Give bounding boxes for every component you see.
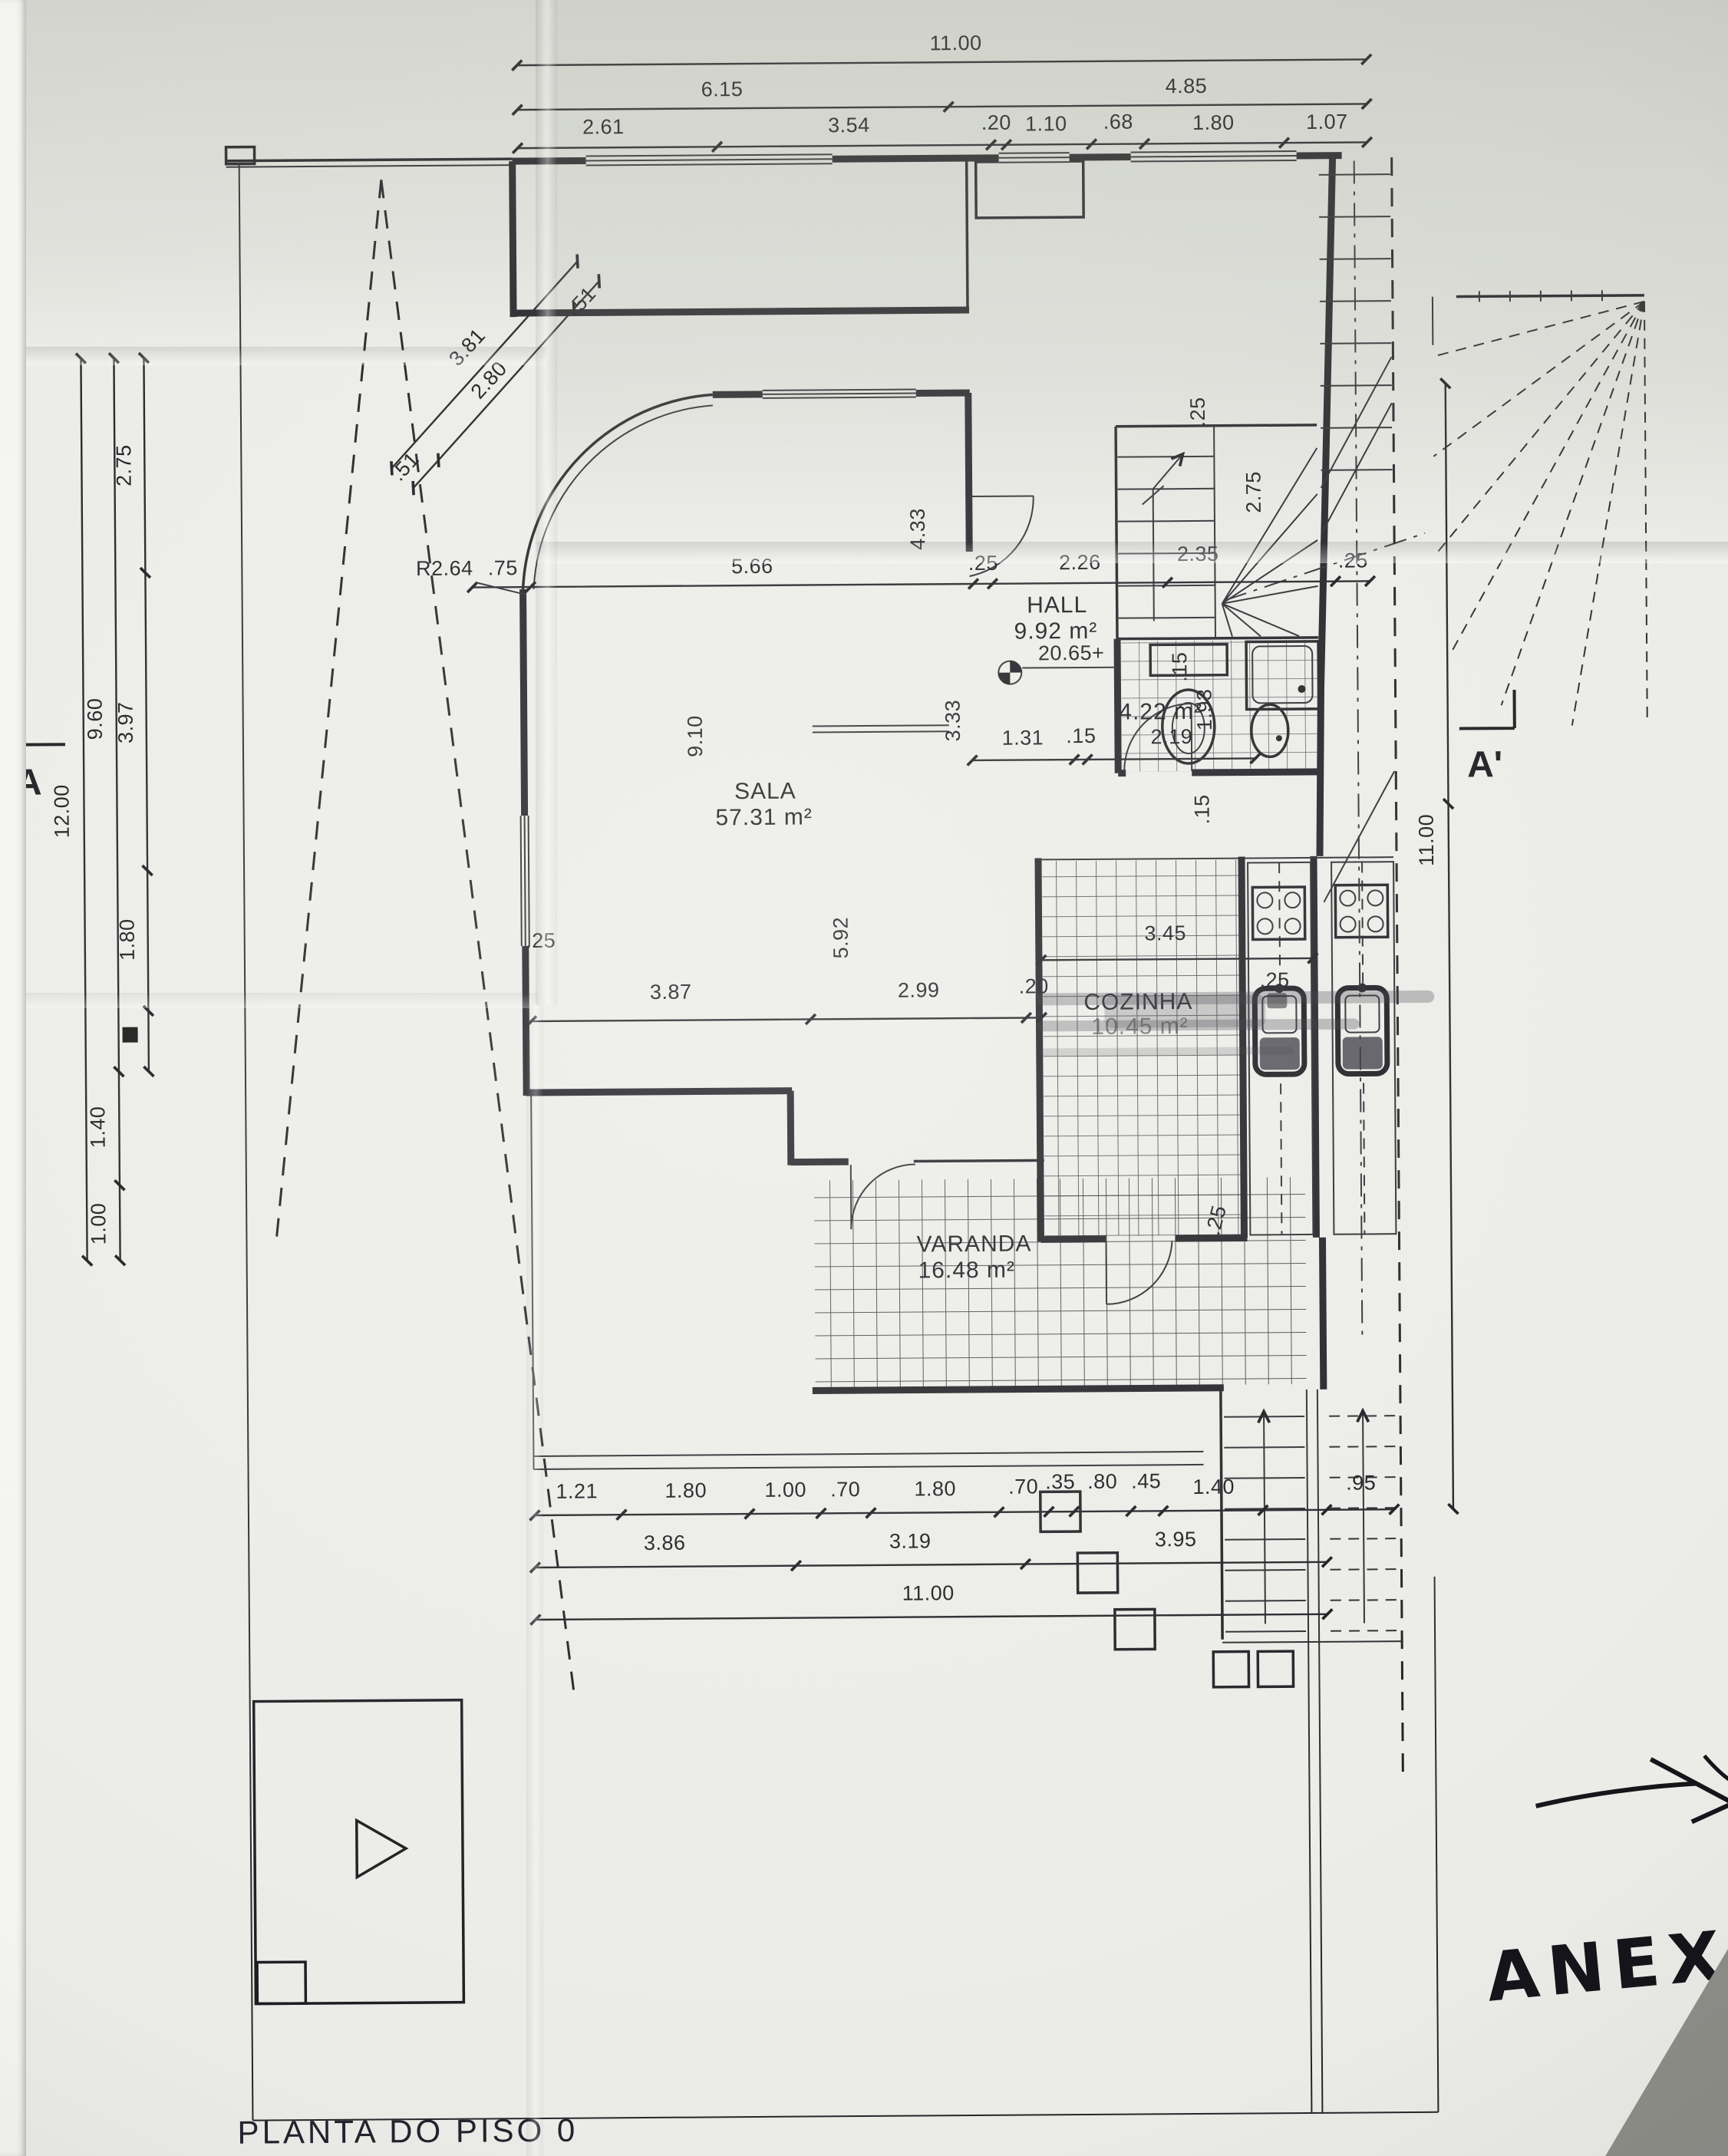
dim-label: 3.86 <box>644 1531 686 1554</box>
dim-label: .25 <box>526 929 556 952</box>
dim-label: .25 <box>968 552 998 575</box>
dim-label: .25 <box>1186 397 1209 427</box>
dim-label: .68 <box>1103 110 1133 134</box>
plan-title: PLANTA DO PISO 0 <box>237 2112 578 2151</box>
room-name-hall: HALL <box>1027 592 1087 618</box>
dim-label: 2.75 <box>1242 471 1265 513</box>
dim-label: .20 <box>981 111 1011 134</box>
dim-label: .80 <box>1087 1470 1117 1493</box>
dim-label: 3.45 <box>1144 921 1186 944</box>
floor-plan-svg: 11.00 6.15 4.85 2.61 3.54 .20 1.10 .68 1… <box>0 0 1728 2156</box>
dim-label: 1.10 <box>1025 112 1067 135</box>
window-top-1 <box>586 153 833 166</box>
dim-mid-row: .25 3.87 2.99 .20 <box>526 925 1049 1021</box>
cooktop-2 <box>1335 885 1387 937</box>
level-marker: 20.65+ <box>998 641 1116 684</box>
level-label: 20.65+ <box>1038 641 1105 665</box>
dim-label: .70 <box>1008 1475 1038 1498</box>
dim-label: 4.33 <box>906 508 929 550</box>
triangle-symbol <box>357 1820 407 1877</box>
dim-label: 1.40 <box>86 1106 109 1149</box>
window-top-2 <box>999 151 1070 164</box>
garden-stairs <box>1221 1389 1406 2114</box>
dim-label: .25 <box>1338 549 1368 572</box>
window-top-3 <box>1131 150 1297 163</box>
dim-label: 5.66 <box>731 555 773 578</box>
dim-label: 2.35 <box>1177 542 1219 565</box>
dim-label: .51 <box>387 447 424 485</box>
room-area-varanda: 16.48 m² <box>918 1258 1015 1284</box>
dim-label: 2.80 <box>467 357 512 403</box>
room-name-varanda: VARANDA <box>916 1231 1031 1257</box>
dim-label: 2.75 <box>112 444 135 486</box>
roof-overhang-dashed <box>1392 157 1403 1784</box>
dim-label: .35 <box>1045 1470 1075 1493</box>
dim-label: .75 <box>488 556 518 579</box>
room-area-hall: 9.92 m² <box>1014 618 1097 644</box>
terrain-boundary <box>226 139 1439 2121</box>
dim-label: .15 <box>1190 794 1213 824</box>
dim-label: 3.54 <box>828 114 870 137</box>
dim-label: 12.00 <box>50 784 73 838</box>
room-area-sala: 57.31 m² <box>715 804 813 830</box>
dim-label: .15 <box>1066 724 1096 747</box>
scribble <box>1535 1783 1697 1805</box>
dim-label: 1.00 <box>764 1479 806 1502</box>
entry-porch <box>976 161 1084 218</box>
annex-note: ANEXO <box>1483 1909 1728 2016</box>
radius-label: R2.64 <box>416 557 473 581</box>
dim-label: 3.97 <box>114 701 137 743</box>
dim-label: .95 <box>1346 1471 1376 1494</box>
dim-top: 11.00 6.15 4.85 2.61 3.54 .20 1.10 .68 1… <box>516 28 1367 148</box>
dim-label: 11.00 <box>902 1581 955 1604</box>
window-sala-left <box>519 816 532 946</box>
curved-bay-wall <box>522 394 714 589</box>
dim-label: 3.95 <box>1155 1528 1197 1551</box>
room-area-wc: 4.22 m² <box>1119 699 1202 725</box>
dim-label: 3.33 <box>941 700 965 742</box>
hall-staircase <box>1117 424 1426 639</box>
stepping-stones <box>1040 1490 1294 1688</box>
dim-label: 2.19 <box>1151 725 1193 748</box>
dim-label: 1.40 <box>1192 1475 1235 1498</box>
pool-outline <box>254 1700 464 2004</box>
window-sala-top <box>763 388 916 401</box>
chain-square-marker <box>123 1027 138 1043</box>
dim-label: .25 <box>1259 968 1289 991</box>
dim-label: 3.81 <box>444 324 490 370</box>
dim-label: 2.26 <box>1059 551 1101 574</box>
dim-label: 1.21 <box>556 1479 598 1502</box>
dim-label: .45 <box>1131 1469 1161 1492</box>
dim-label: .15 <box>1168 651 1191 681</box>
scribble <box>1704 1755 1728 1782</box>
dim-label: 1.80 <box>914 1477 956 1500</box>
dim-label: 3.19 <box>889 1529 932 1552</box>
dim-label: 11.00 <box>1415 814 1438 866</box>
cooktop-1 <box>1252 887 1304 939</box>
dim-label: 5.92 <box>829 917 852 959</box>
dim-label: 3.87 <box>650 981 692 1004</box>
dim-label: 1.80 <box>116 918 139 961</box>
dim-left: 12.00 9.60 1.40 1.00 2.75 3.97 1.80 <box>47 358 150 1261</box>
section-label-a: A <box>15 762 42 803</box>
dim-label: 6.15 <box>701 77 744 101</box>
dim-diagonal: 3.81 2.80 .51 .51 <box>385 261 602 488</box>
section-label-a-prime: A' <box>1467 744 1502 785</box>
dim-label: 2.61 <box>582 115 625 138</box>
dim-label: .70 <box>830 1478 860 1501</box>
dim-label: 1.00 <box>87 1203 110 1245</box>
handwritten-annotation: ANEXO <box>1482 1755 1728 2017</box>
dim-label: 9.10 <box>684 715 707 757</box>
scanned-floor-plan-photo: 11.00 6.15 4.85 2.61 3.54 .20 1.10 .68 1… <box>0 0 1728 2156</box>
dim-label: 9.60 <box>84 698 107 740</box>
section-marker-a-prime: A' <box>1459 690 1515 785</box>
dim-label: 11.00 <box>929 31 981 54</box>
dim-label: 4.85 <box>1166 74 1208 97</box>
dim-right: 11.00 <box>1412 384 1453 1509</box>
stair-up-arrow <box>1153 455 1183 621</box>
dim-label: 1.80 <box>1192 111 1235 134</box>
yard-fan <box>1433 290 1647 727</box>
dim-label: 1.80 <box>664 1479 707 1502</box>
dim-label: 1.31 <box>1002 726 1044 749</box>
room-name-sala: SALA <box>734 779 796 805</box>
dim-label: 2.99 <box>898 978 940 1001</box>
dim-label: 1.07 <box>1306 110 1348 134</box>
